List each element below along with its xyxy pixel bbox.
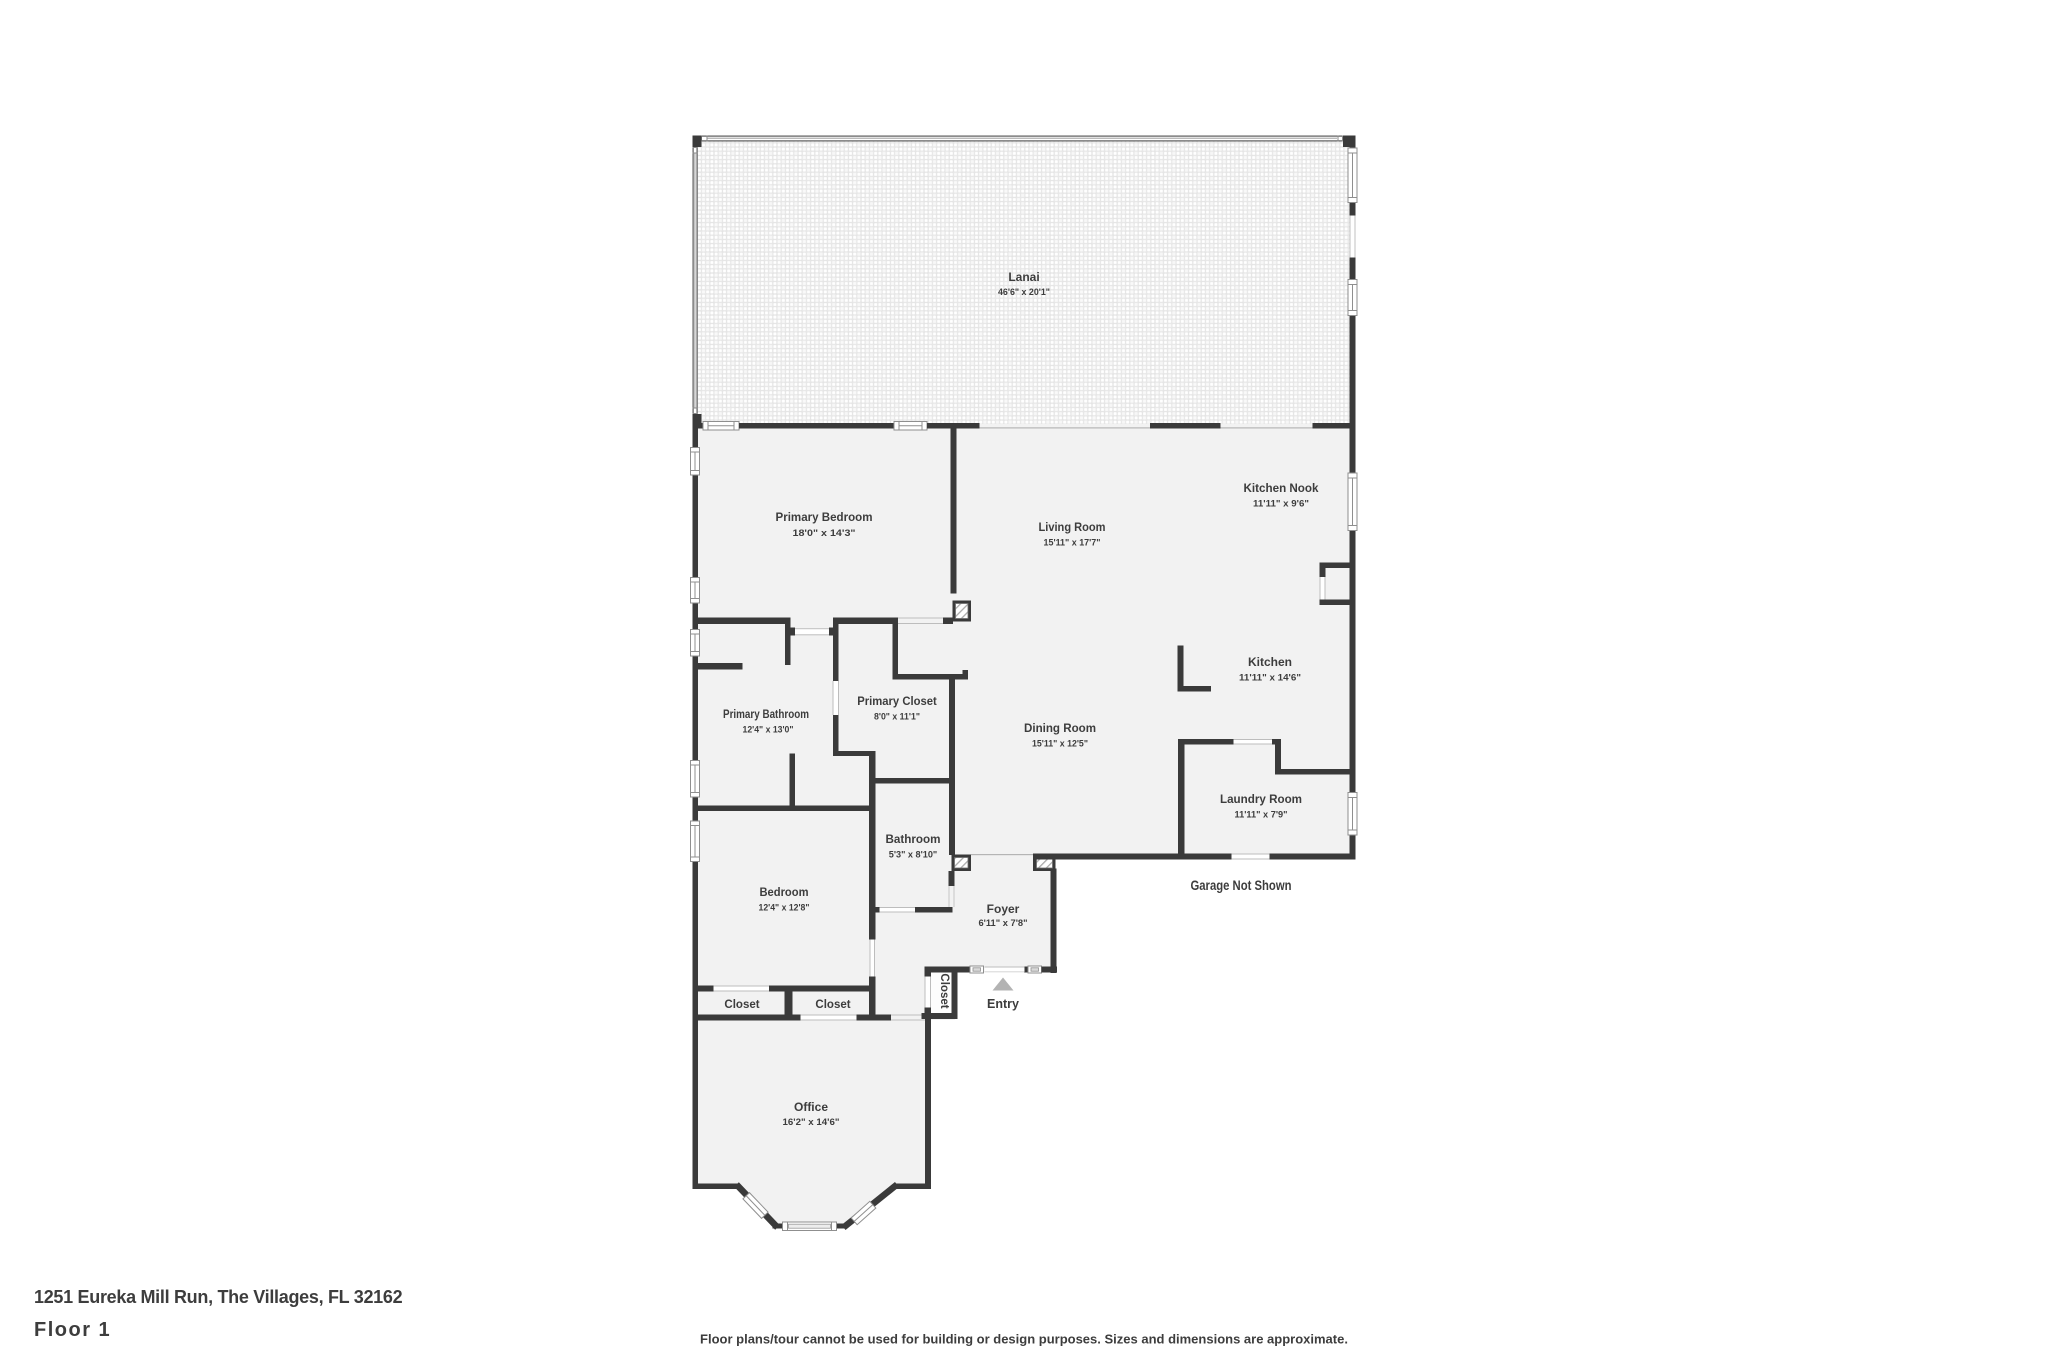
svg-text:Floor plans/tour cannot be use: Floor plans/tour cannot be used for buil… [700,1332,1348,1347]
svg-text:Closet: Closet [724,999,759,1011]
svg-text:Bathroom: Bathroom [886,832,941,846]
svg-text:12'4" x 13'0": 12'4" x 13'0" [743,725,794,736]
svg-text:11'11" x 7'9": 11'11" x 7'9" [1235,810,1288,821]
svg-text:8'0" x 11'1": 8'0" x 11'1" [874,712,920,723]
svg-text:Bedroom: Bedroom [760,885,809,899]
svg-text:1251 Eureka Mill Run, The Vill: 1251 Eureka Mill Run, The Villages, FL 3… [34,1287,403,1307]
svg-text:Dining Room: Dining Room [1024,721,1096,735]
svg-text:Floor 1: Floor 1 [34,1319,111,1341]
svg-text:Primary Bathroom: Primary Bathroom [723,707,809,721]
svg-text:11'11" x 9'6": 11'11" x 9'6" [1253,499,1309,510]
svg-text:Kitchen: Kitchen [1248,655,1292,669]
svg-text:Office: Office [794,1100,828,1114]
svg-text:Closet: Closet [938,973,950,1008]
svg-text:Primary Closet: Primary Closet [857,694,937,708]
svg-text:46'6" x 20'1": 46'6" x 20'1" [998,287,1050,298]
svg-text:6'11" x 7'8": 6'11" x 7'8" [979,918,1028,929]
svg-text:18'0" x 14'3": 18'0" x 14'3" [793,528,856,539]
svg-text:15'11" x 12'5": 15'11" x 12'5" [1032,739,1088,750]
svg-text:Laundry Room: Laundry Room [1220,792,1302,806]
svg-text:15'11" x 17'7": 15'11" x 17'7" [1044,538,1101,549]
svg-text:Garage Not Shown: Garage Not Shown [1191,878,1292,893]
svg-text:Entry: Entry [987,997,1019,1011]
svg-text:Foyer: Foyer [987,902,1020,916]
svg-text:Living Room: Living Room [1039,520,1106,534]
svg-text:Kitchen Nook: Kitchen Nook [1244,481,1319,495]
svg-text:12'4" x 12'8": 12'4" x 12'8" [759,903,810,914]
svg-text:11'11" x 14'6": 11'11" x 14'6" [1239,673,1301,684]
svg-text:16'2" x 14'6": 16'2" x 14'6" [783,1117,840,1128]
svg-text:Closet: Closet [815,999,850,1011]
svg-text:Primary Bedroom: Primary Bedroom [776,510,873,524]
svg-text:Lanai: Lanai [1008,270,1039,284]
svg-text:5'3" x 8'10": 5'3" x 8'10" [889,850,938,861]
